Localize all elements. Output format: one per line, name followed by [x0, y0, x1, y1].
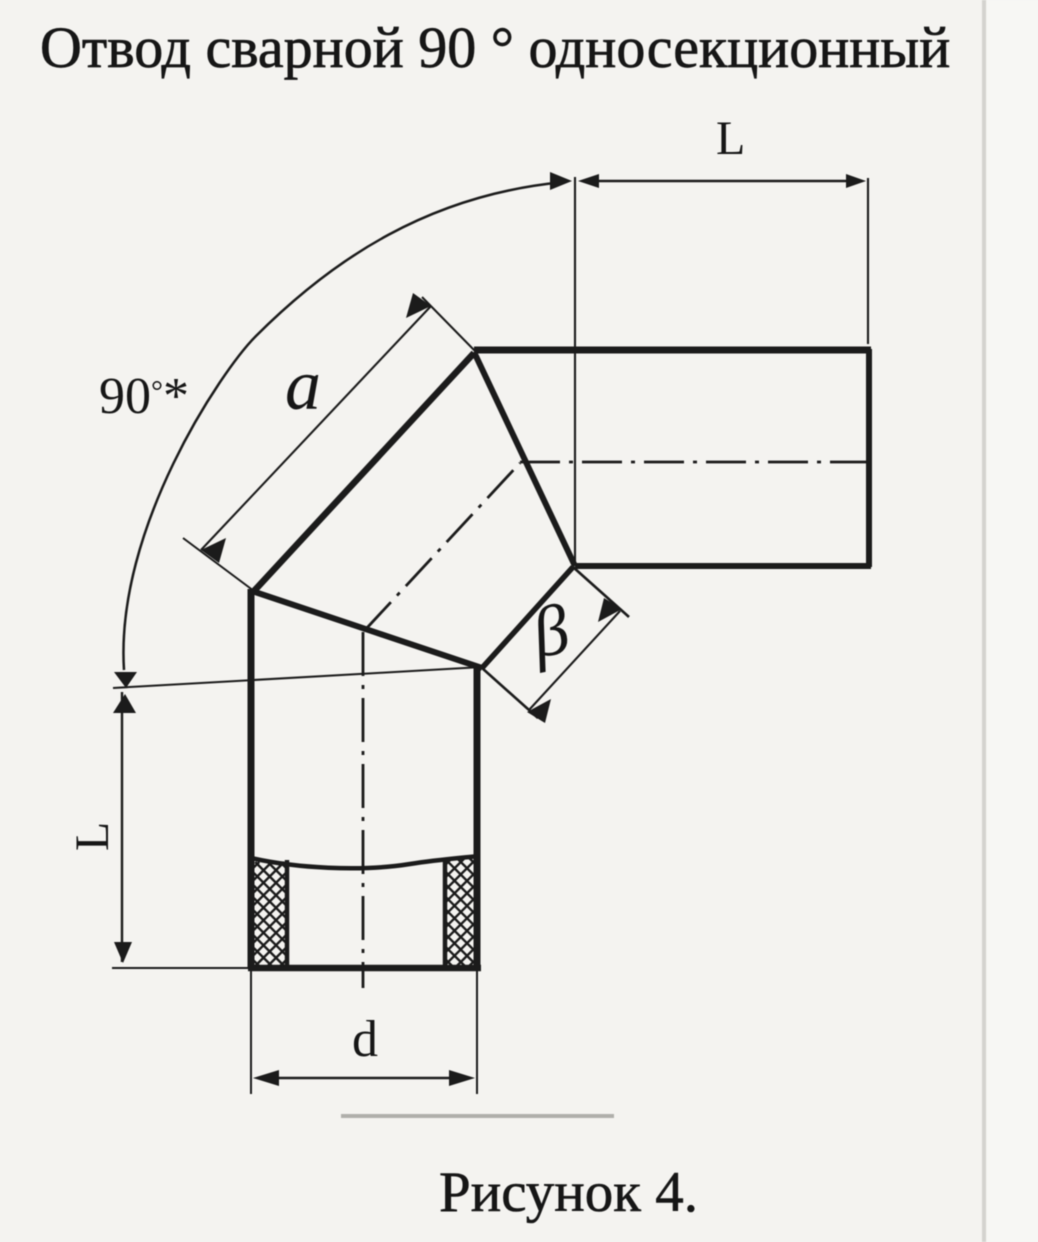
svg-text:90°*: 90°*: [99, 368, 189, 425]
svg-text:L: L: [66, 822, 119, 851]
svg-text:d: d: [352, 1011, 378, 1068]
svg-text:Отвод сварной 90 ° односекцион: Отвод сварной 90 ° односекционный: [40, 15, 950, 80]
svg-text:Рисунок 4.: Рисунок 4.: [439, 1161, 698, 1224]
svg-text:L: L: [716, 112, 745, 165]
svg-text:a: a: [285, 345, 321, 425]
